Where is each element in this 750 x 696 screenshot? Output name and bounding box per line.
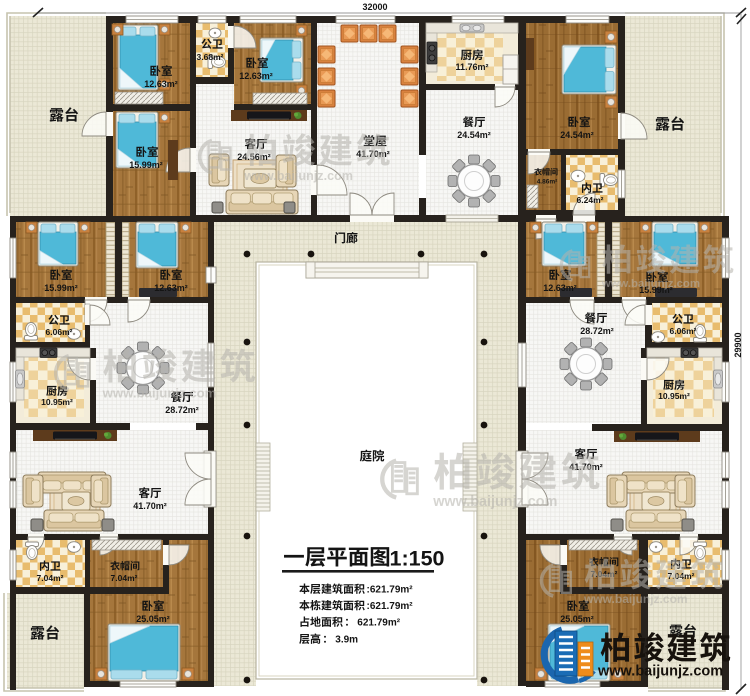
svg-text:7.04m²: 7.04m² (37, 573, 64, 583)
svg-text:32000: 32000 (362, 2, 387, 12)
svg-text:25.05m²: 25.05m² (560, 614, 594, 624)
svg-text:： 3.9m: ： 3.9m (323, 635, 359, 646)
svg-text:12.63m²: 12.63m² (543, 283, 577, 293)
svg-text:www.baijunjz.com: www.baijunjz.com (102, 386, 217, 401)
svg-text:： 621.79m²: ： 621.79m² (345, 618, 401, 629)
svg-text:24.54m²: 24.54m² (560, 130, 594, 140)
svg-text:28.72m²: 28.72m² (580, 326, 614, 336)
svg-text:7.04m²: 7.04m² (111, 573, 138, 583)
svg-text:4.86m²: 4.86m² (537, 178, 558, 185)
svg-text:www.baijunjz.com: www.baijunjz.com (583, 592, 688, 606)
svg-text:www.baijunjz.com: www.baijunjz.com (243, 169, 353, 183)
svg-text::621.79m²: :621.79m² (367, 601, 414, 612)
svg-text:10.95m²: 10.95m² (658, 391, 690, 401)
svg-text:1:150: 1:150 (390, 547, 445, 571)
svg-text:41.70m²: 41.70m² (133, 501, 167, 511)
svg-text:29900: 29900 (733, 332, 743, 357)
svg-text:28.72m²: 28.72m² (165, 405, 199, 415)
svg-text:12.63m²: 12.63m² (239, 71, 273, 81)
svg-text:15.99m²: 15.99m² (44, 283, 78, 293)
svg-text:25.05m²: 25.05m² (136, 614, 170, 624)
svg-text:10.95m²: 10.95m² (41, 397, 73, 407)
svg-text:www.baijunjz.com: www.baijunjz.com (597, 664, 723, 680)
svg-text:11.76m²: 11.76m² (455, 62, 488, 72)
svg-text:3.68m²: 3.68m² (197, 52, 224, 62)
svg-text:6.24m²: 6.24m² (577, 195, 604, 205)
svg-text::621.79m²: :621.79m² (367, 585, 414, 596)
svg-text:15.99m²: 15.99m² (129, 160, 163, 170)
svg-text:www.baijunjz.com: www.baijunjz.com (432, 494, 557, 510)
svg-text:24.54m²: 24.54m² (457, 130, 491, 140)
svg-text:www.baijunjz.com: www.baijunjz.com (601, 278, 700, 290)
svg-text:6.06m²: 6.06m² (670, 326, 697, 336)
svg-text:12.63m²: 12.63m² (144, 79, 178, 89)
svg-text:6.06m²: 6.06m² (46, 327, 73, 337)
svg-text:12.63m²: 12.63m² (154, 283, 188, 293)
